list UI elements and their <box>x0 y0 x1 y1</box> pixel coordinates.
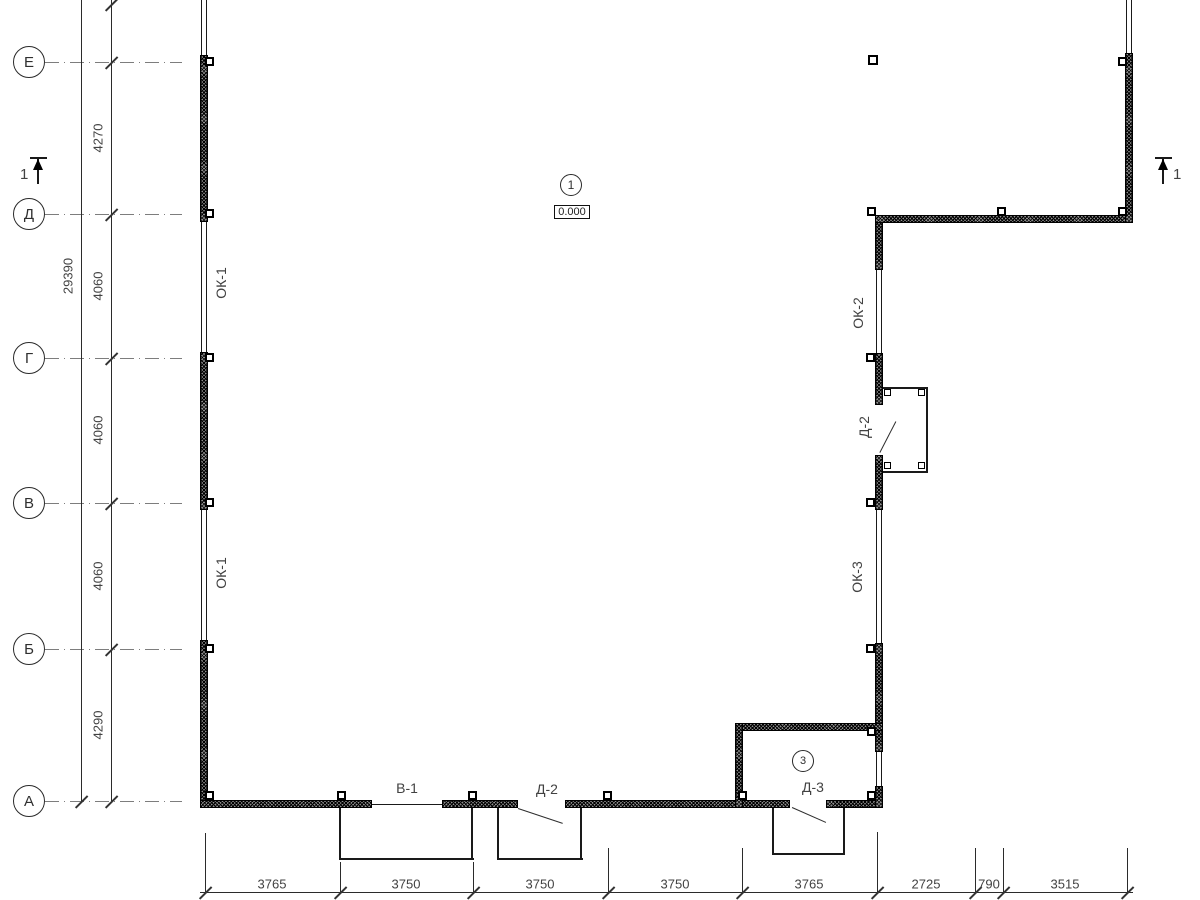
floor-plan-canvas: ЕДГВБА3765375037503750376527257903515427… <box>0 0 1200 900</box>
grid-square <box>468 791 477 800</box>
porch-line <box>339 808 341 860</box>
grid-square <box>884 462 891 469</box>
dimension-text: 3750 <box>661 877 690 892</box>
wall-segment <box>735 723 883 731</box>
dimension-text: 3750 <box>526 877 555 892</box>
porch-line <box>883 471 928 473</box>
grid-square <box>867 207 876 216</box>
door-label: Д-3 <box>802 779 824 795</box>
grid-square <box>205 791 214 800</box>
porch-line <box>843 808 845 855</box>
window-glazing <box>876 270 882 353</box>
wall-segment <box>875 353 883 405</box>
door-leaf <box>792 807 826 823</box>
axis-line <box>45 801 182 802</box>
window-door-label: ОК-1 <box>213 267 229 299</box>
wall-segment <box>200 800 372 808</box>
axis-line <box>45 503 182 504</box>
door-label: Д-2 <box>536 781 558 797</box>
room-marker-circle: 3 <box>792 750 814 772</box>
wall-segment <box>565 800 790 808</box>
axis-line <box>45 62 182 63</box>
window-glazing <box>201 0 207 55</box>
axis-circle: В <box>13 487 45 519</box>
window-glazing <box>876 510 882 643</box>
extension-line <box>742 848 743 893</box>
dimension-text: 3765 <box>258 877 287 892</box>
dimension-text: 790 <box>978 877 1000 892</box>
wall-segment <box>875 215 1133 223</box>
porch-line <box>471 808 473 860</box>
wall-segment <box>875 786 883 808</box>
section-arrow-icon <box>33 159 43 170</box>
grid-square <box>205 353 214 362</box>
dimension-text: 4060 <box>91 562 106 591</box>
porch-line <box>497 808 499 860</box>
grid-square <box>997 207 1006 216</box>
grid-square <box>867 791 876 800</box>
grid-square <box>866 498 875 507</box>
axis-line <box>45 214 182 215</box>
dimension-line <box>111 0 112 801</box>
section-arrow-icon <box>1158 159 1168 170</box>
window-glazing <box>201 510 207 640</box>
grid-square <box>205 644 214 653</box>
axis-circle: Г <box>13 342 45 374</box>
window-glazing <box>201 222 207 352</box>
wall-segment <box>875 455 883 510</box>
axis-line <box>45 649 182 650</box>
dimension-text: 4060 <box>91 416 106 445</box>
axis-circle: Б <box>13 633 45 665</box>
window-door-label: Д-2 <box>856 416 872 438</box>
grid-square <box>205 498 214 507</box>
door-leaf <box>518 808 563 824</box>
axis-line <box>45 358 182 359</box>
grid-square <box>918 462 925 469</box>
porch-line <box>372 804 442 805</box>
extension-line <box>608 848 609 893</box>
grid-square <box>205 57 214 66</box>
window-door-label: ОК-1 <box>213 557 229 589</box>
extension-line <box>340 862 341 893</box>
porch-line <box>339 858 474 860</box>
grid-square <box>866 644 875 653</box>
grid-square <box>1118 207 1127 216</box>
axis-circle: Е <box>13 46 45 78</box>
wall-segment <box>200 640 208 808</box>
extension-line <box>975 848 976 893</box>
window-door-label: ОК-3 <box>849 561 865 593</box>
extension-line <box>1127 848 1128 893</box>
wall-segment <box>200 55 208 222</box>
porch-line <box>772 808 774 855</box>
extension-line <box>1003 848 1004 893</box>
window-glazing <box>1126 0 1132 53</box>
porch-line <box>772 853 845 855</box>
wall-segment <box>875 215 883 270</box>
window-glazing <box>876 752 882 786</box>
grid-square <box>918 389 925 396</box>
grid-square <box>603 791 612 800</box>
dimension-text: 2725 <box>912 877 941 892</box>
extension-line <box>205 833 206 893</box>
porch-line <box>580 808 582 860</box>
extension-line <box>473 862 474 893</box>
grid-square <box>738 791 747 800</box>
overall-dimension-text: 29390 <box>61 258 76 294</box>
wall-segment <box>875 643 883 752</box>
grid-square <box>1118 57 1127 66</box>
wall-segment <box>442 800 518 808</box>
dimension-text: 4060 <box>91 272 106 301</box>
axis-circle: А <box>13 785 45 817</box>
extension-line <box>877 832 878 893</box>
grid-square <box>868 55 878 65</box>
door-leaf <box>879 421 896 453</box>
porch-line <box>926 387 928 473</box>
wall-segment <box>200 352 208 510</box>
dimension-line <box>81 0 82 801</box>
grid-square <box>866 353 875 362</box>
plan-marker-circle: 1 <box>560 174 582 196</box>
axis-circle: Д <box>13 198 45 230</box>
dimension-text: 4290 <box>91 711 106 740</box>
grid-square <box>867 727 876 736</box>
dimension-text: 3750 <box>392 877 421 892</box>
section-mark-label: 1 <box>1173 166 1181 183</box>
grid-square <box>205 209 214 218</box>
dimension-text: 3515 <box>1051 877 1080 892</box>
wall-segment <box>1125 53 1133 223</box>
elevation-label: 0.000 <box>554 205 590 219</box>
section-mark-label: 1 <box>20 166 28 183</box>
grid-square <box>337 791 346 800</box>
window-door-label: ОК-2 <box>850 297 866 329</box>
porch-line <box>497 858 583 860</box>
dimension-text: 4270 <box>91 124 106 153</box>
grid-square <box>884 389 891 396</box>
door-label: В-1 <box>396 780 418 796</box>
dimension-text: 3765 <box>795 877 824 892</box>
